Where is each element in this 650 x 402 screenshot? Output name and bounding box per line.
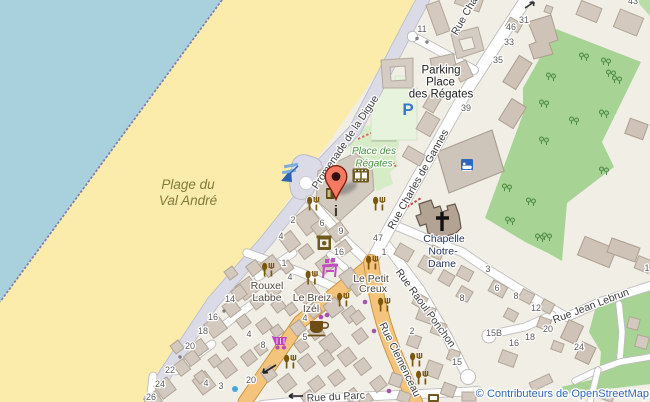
svg-text:5: 5 xyxy=(302,332,307,342)
svg-text:1: 1 xyxy=(281,258,286,268)
svg-text:Rouxel: Rouxel xyxy=(251,280,284,292)
svg-text:16: 16 xyxy=(208,312,218,322)
svg-text:24: 24 xyxy=(155,379,165,389)
svg-text:31: 31 xyxy=(519,15,529,25)
svg-text:Creux: Creux xyxy=(359,283,388,295)
svg-text:Notre-: Notre- xyxy=(428,246,458,258)
svg-text:Chapelle: Chapelle xyxy=(423,233,465,245)
svg-text:6: 6 xyxy=(494,283,499,293)
svg-text:47: 47 xyxy=(373,233,383,243)
svg-text:24: 24 xyxy=(574,342,584,352)
svg-text:2: 2 xyxy=(409,326,414,336)
svg-text:11: 11 xyxy=(417,24,426,34)
svg-text:16: 16 xyxy=(334,247,344,257)
svg-text:4: 4 xyxy=(278,231,283,241)
svg-text:18: 18 xyxy=(198,326,208,336)
svg-text:Parking: Parking xyxy=(422,65,461,77)
svg-text:12: 12 xyxy=(531,303,541,313)
svg-text:46: 46 xyxy=(506,22,516,32)
svg-text:3: 3 xyxy=(485,264,490,274)
svg-text:15: 15 xyxy=(452,357,462,367)
svg-text:4: 4 xyxy=(287,272,292,282)
svg-text:P: P xyxy=(402,100,413,119)
svg-text:18: 18 xyxy=(525,332,535,342)
svg-text:39: 39 xyxy=(461,103,471,113)
svg-text:Dame: Dame xyxy=(428,258,456,270)
svg-text:Place des: Place des xyxy=(352,146,396,157)
svg-text:8: 8 xyxy=(260,340,265,350)
svg-text:2: 2 xyxy=(290,215,295,225)
svg-text:i: i xyxy=(334,203,338,220)
svg-text:4: 4 xyxy=(302,313,307,323)
svg-text:43: 43 xyxy=(628,0,638,6)
svg-text:22: 22 xyxy=(165,365,175,375)
svg-text:Rue du Parc: Rue du Parc xyxy=(306,389,365,402)
svg-text:20: 20 xyxy=(185,341,195,351)
svg-text:1: 1 xyxy=(644,263,649,273)
svg-text:20: 20 xyxy=(246,375,256,385)
svg-text:9: 9 xyxy=(338,226,343,236)
svg-text:4: 4 xyxy=(246,329,251,339)
svg-text:Place: Place xyxy=(426,77,455,89)
svg-text:Val André: Val André xyxy=(159,193,217,208)
svg-text:1: 1 xyxy=(381,247,386,257)
svg-text:14: 14 xyxy=(225,294,235,304)
svg-text:26: 26 xyxy=(146,392,156,402)
svg-text:4: 4 xyxy=(203,378,208,388)
svg-text:Plage du: Plage du xyxy=(161,177,215,192)
svg-text:© Contributeurs de OpenStreetM: © Contributeurs de OpenStreetMap xyxy=(476,388,649,400)
svg-text:15B: 15B xyxy=(486,328,502,338)
svg-text:des Régates: des Régates xyxy=(409,89,474,101)
svg-text:Régates: Régates xyxy=(355,159,392,170)
svg-text:16: 16 xyxy=(509,338,519,348)
svg-text:35: 35 xyxy=(493,55,503,65)
svg-text:20: 20 xyxy=(543,324,553,334)
svg-text:6: 6 xyxy=(319,218,324,228)
svg-text:Labbe: Labbe xyxy=(252,292,281,304)
svg-text:8: 8 xyxy=(459,293,464,303)
svg-text:8: 8 xyxy=(513,291,518,301)
svg-text:3: 3 xyxy=(218,381,223,391)
svg-text:33: 33 xyxy=(504,37,514,47)
